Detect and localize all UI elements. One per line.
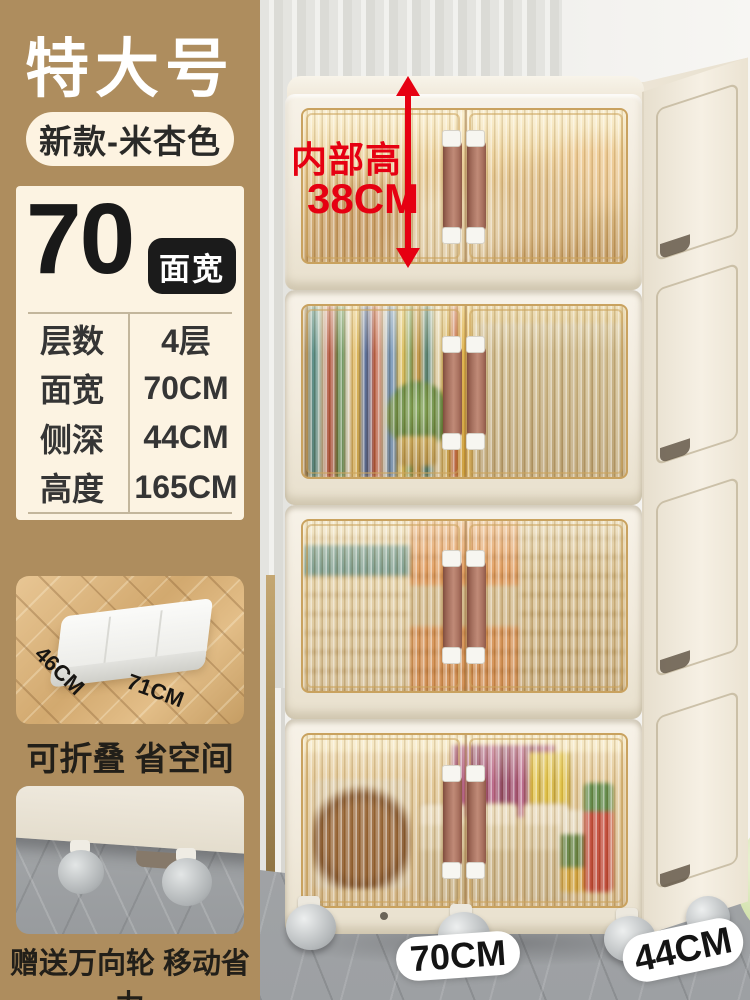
spec-label: 层数 [16,316,128,362]
front-width-pill: 70CM [395,930,522,983]
cabinet-base [16,786,244,855]
handle-strap [467,343,486,441]
spec-label: 面宽 [16,365,128,411]
wheels-photo [16,786,244,934]
tier-3-left-door [306,524,460,687]
spec-value: 44CM [128,419,244,456]
spec-label: 高度 [16,464,128,510]
box-seam [155,610,163,657]
spec-value: 70CM [128,370,244,407]
side-groove [656,691,738,890]
spec-row-depth: 侧深 44CM [16,413,244,463]
internal-height-label: 内部高 [291,142,402,178]
tier-1-right-door [469,113,623,259]
tier-3-handle [442,553,488,659]
handle-clip [466,433,485,450]
handle-clip [466,550,485,567]
handle-clip [442,433,461,450]
spec-value: 165CM [128,469,244,506]
divider-bottom [28,512,232,514]
width-unit-label: 面宽 [159,244,225,289]
side-groove [656,477,738,678]
spec-row-height: 高度 165CM [16,463,244,513]
cabinet-tier-4 [285,719,642,934]
handle-clip [466,130,485,147]
handle-strap [443,772,462,870]
tier-1-handle [442,133,488,239]
tier-2-right-door [469,309,623,473]
side-groove [656,263,738,466]
caster-wheel [58,850,104,894]
tier-4-handle [442,768,488,874]
wheels-caption: 赠送万向轮 移动省力 [0,940,260,1000]
spec-label: 侧深 [16,415,128,461]
width-dimension-label: 71CM [123,669,187,714]
handle-strap [443,557,462,655]
tier-3-right-door [469,524,623,687]
handle-clip [442,550,461,567]
handle-strap [467,137,486,235]
box-seam [103,617,111,664]
internal-height-value: 38CM [307,178,419,220]
size-title: 特大号 [0,18,260,110]
product-listing-image: 特大号 新款-米杏色 70 面宽 层数 4层 面宽 70CM 侧深 [0,0,750,1000]
spec-row-layers: 层数 4层 [16,314,244,364]
handle-clip [466,862,485,879]
cabinet-tier-2 [285,290,642,505]
fold-caption: 可折叠 省空间 [0,732,260,780]
width-number: 70 [26,182,133,297]
info-column: 特大号 新款-米杏色 70 面宽 层数 4层 面宽 70CM 侧深 [0,0,260,1000]
width-unit-badge: 面宽 [148,238,236,294]
height-measure-arrow-shaft [405,94,411,250]
tier-2-doors [301,304,628,479]
cabinet-side-panel [642,57,748,936]
handle-strap [443,343,462,441]
handle-clip [466,647,485,664]
height-measure-arrow-icon [396,76,420,96]
tier-4-right-door [469,738,623,902]
caster-wheel [162,858,212,906]
handle-clip [442,862,461,879]
handle-clip [466,336,485,353]
spec-value: 4层 [128,316,244,362]
wall-corner-trim [266,575,275,887]
handle-clip [442,647,461,664]
main-photo: 内部高 38CM 70CM 44CM [260,0,750,1000]
handle-clip [442,130,461,147]
handle-clip [466,227,485,244]
spec-panel: 70 面宽 层数 4层 面宽 70CM 侧深 44CM [16,186,244,520]
handle-strap [467,557,486,655]
handle-strap [443,137,462,235]
variant-badge-label: 新款-米杏色 [39,115,221,163]
handle-strap [467,772,486,870]
handle-clip [466,765,485,782]
height-measure-arrow-icon [396,248,420,268]
side-groove [656,83,738,262]
spec-table: 层数 4层 面宽 70CM 侧深 44CM 高度 165CM [16,314,244,512]
tier-4-doors [301,733,628,908]
tier-2-left-door [306,309,460,473]
cabinet-tier-3 [285,505,642,719]
front-width-label: 70CM [409,932,508,981]
folded-box-photo: 46CM 71CM [16,576,244,724]
handle-clip [442,765,461,782]
tier-4-left-door [306,738,460,902]
variant-badge: 新款-米杏色 [26,112,234,166]
handle-clip [442,227,461,244]
screw-dot [380,912,388,920]
tier-3-doors [301,519,628,693]
caster-wheel [286,904,336,950]
spec-row-width: 面宽 70CM [16,364,244,414]
tier-2-handle [442,339,488,445]
handle-clip [442,336,461,353]
